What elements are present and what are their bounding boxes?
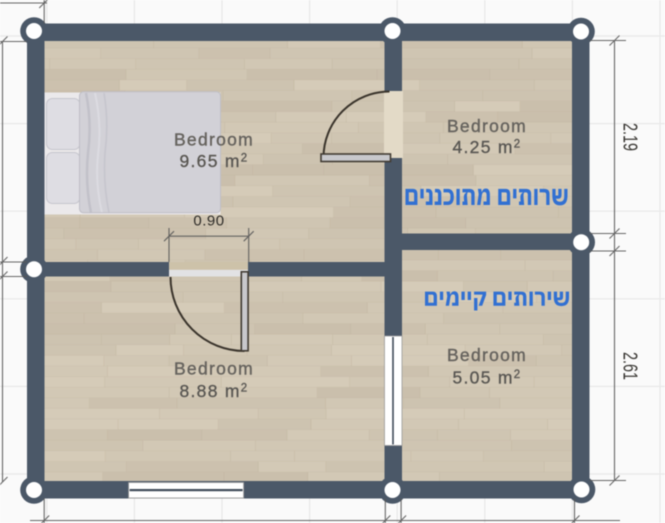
svg-text:Bedroom: Bedroom	[447, 116, 527, 136]
svg-text:2.61: 2.61	[619, 352, 642, 380]
svg-text:8.88 m2: 8.88 m2	[179, 381, 248, 401]
svg-text:4.25 m2: 4.25 m2	[452, 137, 521, 157]
svg-text:Bedroom: Bedroom	[174, 130, 254, 150]
svg-text:Bedroom: Bedroom	[447, 345, 527, 365]
svg-text:5.05 m2: 5.05 m2	[452, 368, 521, 388]
svg-text:0.90: 0.90	[193, 213, 224, 230]
svg-text:2.19: 2.19	[619, 123, 642, 151]
svg-text:9.65 m2: 9.65 m2	[179, 151, 248, 171]
svg-text:Bedroom: Bedroom	[174, 359, 254, 379]
